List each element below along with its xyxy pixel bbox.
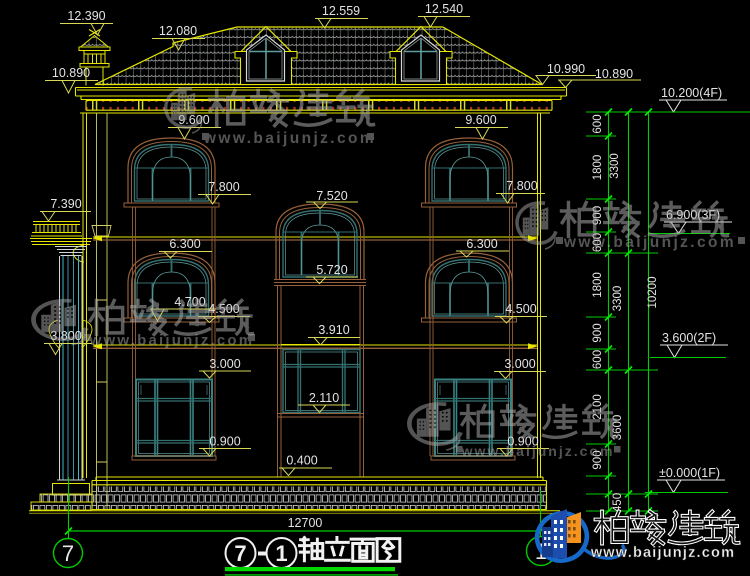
svg-text:900: 900	[592, 323, 604, 342]
svg-text:10.890: 10.890	[595, 67, 633, 81]
svg-text:2100: 2100	[592, 394, 604, 420]
svg-text:0.400: 0.400	[286, 454, 317, 468]
svg-text:12700: 12700	[288, 516, 323, 530]
svg-text:www.baijunjz.com: www.baijunjz.com	[563, 234, 736, 251]
svg-text:10.200(4F): 10.200(4F)	[661, 86, 722, 100]
svg-text:1800: 1800	[592, 272, 604, 298]
svg-text:3300: 3300	[609, 153, 621, 179]
svg-text:www.baijunjz.com: www.baijunjz.com	[461, 443, 615, 459]
svg-text:12.080: 12.080	[159, 24, 197, 38]
svg-text:3.000: 3.000	[209, 357, 240, 371]
svg-text:2.110: 2.110	[309, 391, 339, 405]
svg-text:6.300: 6.300	[169, 237, 200, 251]
svg-text:www.baijunjz.com: www.baijunjz.com	[590, 545, 735, 561]
svg-text:9.600: 9.600	[465, 113, 496, 127]
svg-text:4.500: 4.500	[505, 302, 536, 316]
svg-text:3.000: 3.000	[504, 357, 535, 371]
svg-text:3.910: 3.910	[318, 323, 349, 337]
svg-text:4.700: 4.700	[174, 295, 205, 309]
svg-text:10200: 10200	[647, 277, 659, 309]
svg-text:1800: 1800	[592, 155, 604, 181]
svg-text:600: 600	[592, 350, 604, 369]
svg-text:10.890: 10.890	[52, 66, 90, 80]
svg-text:7: 7	[62, 541, 74, 566]
svg-text:1: 1	[275, 541, 287, 566]
svg-text:10.990: 10.990	[547, 62, 585, 76]
svg-text:7.520: 7.520	[316, 189, 347, 203]
svg-text:±0.000(1F): ±0.000(1F)	[659, 466, 720, 480]
svg-text:12.390: 12.390	[67, 9, 105, 23]
svg-text:12.559: 12.559	[322, 4, 360, 18]
svg-text:12.540: 12.540	[425, 2, 463, 16]
svg-text:www.baijunjz.com: www.baijunjz.com	[203, 130, 376, 147]
svg-text:600: 600	[592, 114, 604, 133]
svg-text:7.800: 7.800	[506, 179, 537, 193]
svg-text:3300: 3300	[612, 286, 624, 312]
svg-text:7.800: 7.800	[208, 180, 239, 194]
svg-text:5.720: 5.720	[316, 263, 347, 277]
svg-text:7: 7	[234, 541, 246, 566]
svg-text:7.390: 7.390	[50, 197, 81, 211]
svg-text:www.baijunjz.com: www.baijunjz.com	[89, 332, 255, 349]
svg-text:0.900: 0.900	[209, 435, 240, 449]
svg-text:6.300: 6.300	[466, 237, 497, 251]
svg-text:3.600(2F): 3.600(2F)	[662, 331, 716, 345]
